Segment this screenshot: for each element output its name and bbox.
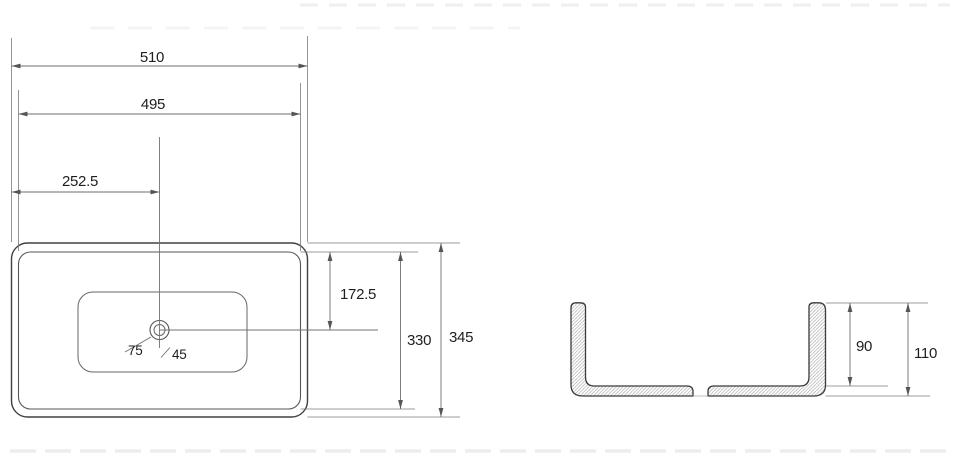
drain-outer-diameter-value: 75 [128,343,142,358]
section-right-wall [708,303,826,396]
dim-inner-width: 495 [19,96,301,114]
inner-height-value: 90 [856,338,872,355]
dim-inner-depth: 330 [401,252,432,409]
overall-height-value: 110 [914,345,937,362]
side-section-view: 90 110 [571,303,937,396]
drain-inner-diameter-callout: 45 [161,347,186,362]
overall-depth-value: 345 [449,329,473,346]
section-left-wall [571,303,693,396]
drain-inner-diameter-value: 45 [172,347,186,362]
basin-bowl-outline [78,292,247,372]
dim-overall-depth: 345 [441,243,473,417]
dim-center-from-top: 172.5 [330,252,376,330]
dim-overall-height: 110 [908,303,937,396]
center-offset-value: 252.5 [62,173,98,190]
technical-drawing-canvas: 510 495 252.5 172.5 330 345 [0,0,956,459]
top-view: 510 495 252.5 172.5 330 345 [12,36,474,417]
overall-width-value: 510 [140,49,164,66]
drain-outer-diameter-callout: 75 [125,337,151,358]
inner-width-value: 495 [141,96,165,113]
center-from-top-value: 172.5 [340,286,376,303]
extension-lines-top-view [12,36,461,417]
technical-drawing-page: 510 495 252.5 172.5 330 345 [0,0,956,459]
dim-center-offset: 252.5 [12,173,160,192]
dim-overall-width: 510 [12,49,308,66]
inner-depth-value: 330 [407,332,431,349]
dim-inner-height: 90 [850,303,872,386]
